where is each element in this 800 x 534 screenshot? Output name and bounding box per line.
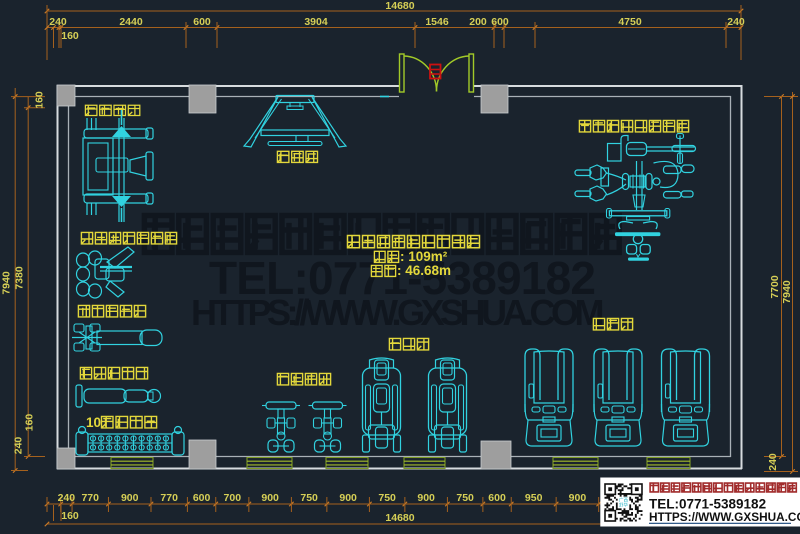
svg-text:900: 900 xyxy=(121,492,139,504)
svg-text:3904: 3904 xyxy=(304,16,328,28)
svg-text:7940: 7940 xyxy=(1,271,13,295)
svg-text:10: 10 xyxy=(86,415,101,430)
svg-text:1546: 1546 xyxy=(425,16,449,28)
svg-text:: 109m²: : 109m² xyxy=(400,249,448,264)
svg-text:7700: 7700 xyxy=(769,275,781,299)
svg-text:240: 240 xyxy=(727,16,745,28)
svg-text:900: 900 xyxy=(261,492,279,504)
svg-text:HTTPS://WWW.GXSHUA.COM: HTTPS://WWW.GXSHUA.COM xyxy=(649,510,800,524)
svg-text:750: 750 xyxy=(300,492,318,504)
svg-text:4750: 4750 xyxy=(618,16,642,28)
svg-text:770: 770 xyxy=(160,492,178,504)
svg-text:240: 240 xyxy=(767,453,779,471)
svg-text:舒华: 舒华 xyxy=(619,501,628,508)
svg-text:240: 240 xyxy=(49,16,67,28)
svg-text:240: 240 xyxy=(58,492,76,504)
svg-text:: 46.68m: : 46.68m xyxy=(397,263,451,278)
svg-text:160: 160 xyxy=(61,30,79,42)
svg-text:950: 950 xyxy=(525,492,543,504)
svg-text:160: 160 xyxy=(61,510,79,522)
svg-text:750: 750 xyxy=(378,492,396,504)
svg-text:600: 600 xyxy=(193,16,211,28)
svg-text:7380: 7380 xyxy=(14,266,26,290)
svg-text:160: 160 xyxy=(34,91,46,109)
svg-text:900: 900 xyxy=(339,492,357,504)
svg-text:700: 700 xyxy=(224,492,242,504)
svg-text:2440: 2440 xyxy=(119,16,143,28)
svg-text:600: 600 xyxy=(488,492,506,504)
svg-text:200: 200 xyxy=(469,16,487,28)
svg-text:14680: 14680 xyxy=(385,0,414,12)
svg-text:14680: 14680 xyxy=(385,512,414,524)
svg-text:240: 240 xyxy=(13,437,25,455)
svg-text:7940: 7940 xyxy=(781,280,793,304)
svg-text:750: 750 xyxy=(456,492,474,504)
svg-text:HTTPS://WWW.GXSHUA.COM: HTTPS://WWW.GXSHUA.COM xyxy=(191,292,602,333)
svg-text:600: 600 xyxy=(491,16,509,28)
svg-text:900: 900 xyxy=(417,492,435,504)
svg-text:770: 770 xyxy=(81,492,99,504)
svg-text:900: 900 xyxy=(569,492,587,504)
svg-text:160: 160 xyxy=(24,414,36,432)
svg-text:600: 600 xyxy=(193,492,211,504)
